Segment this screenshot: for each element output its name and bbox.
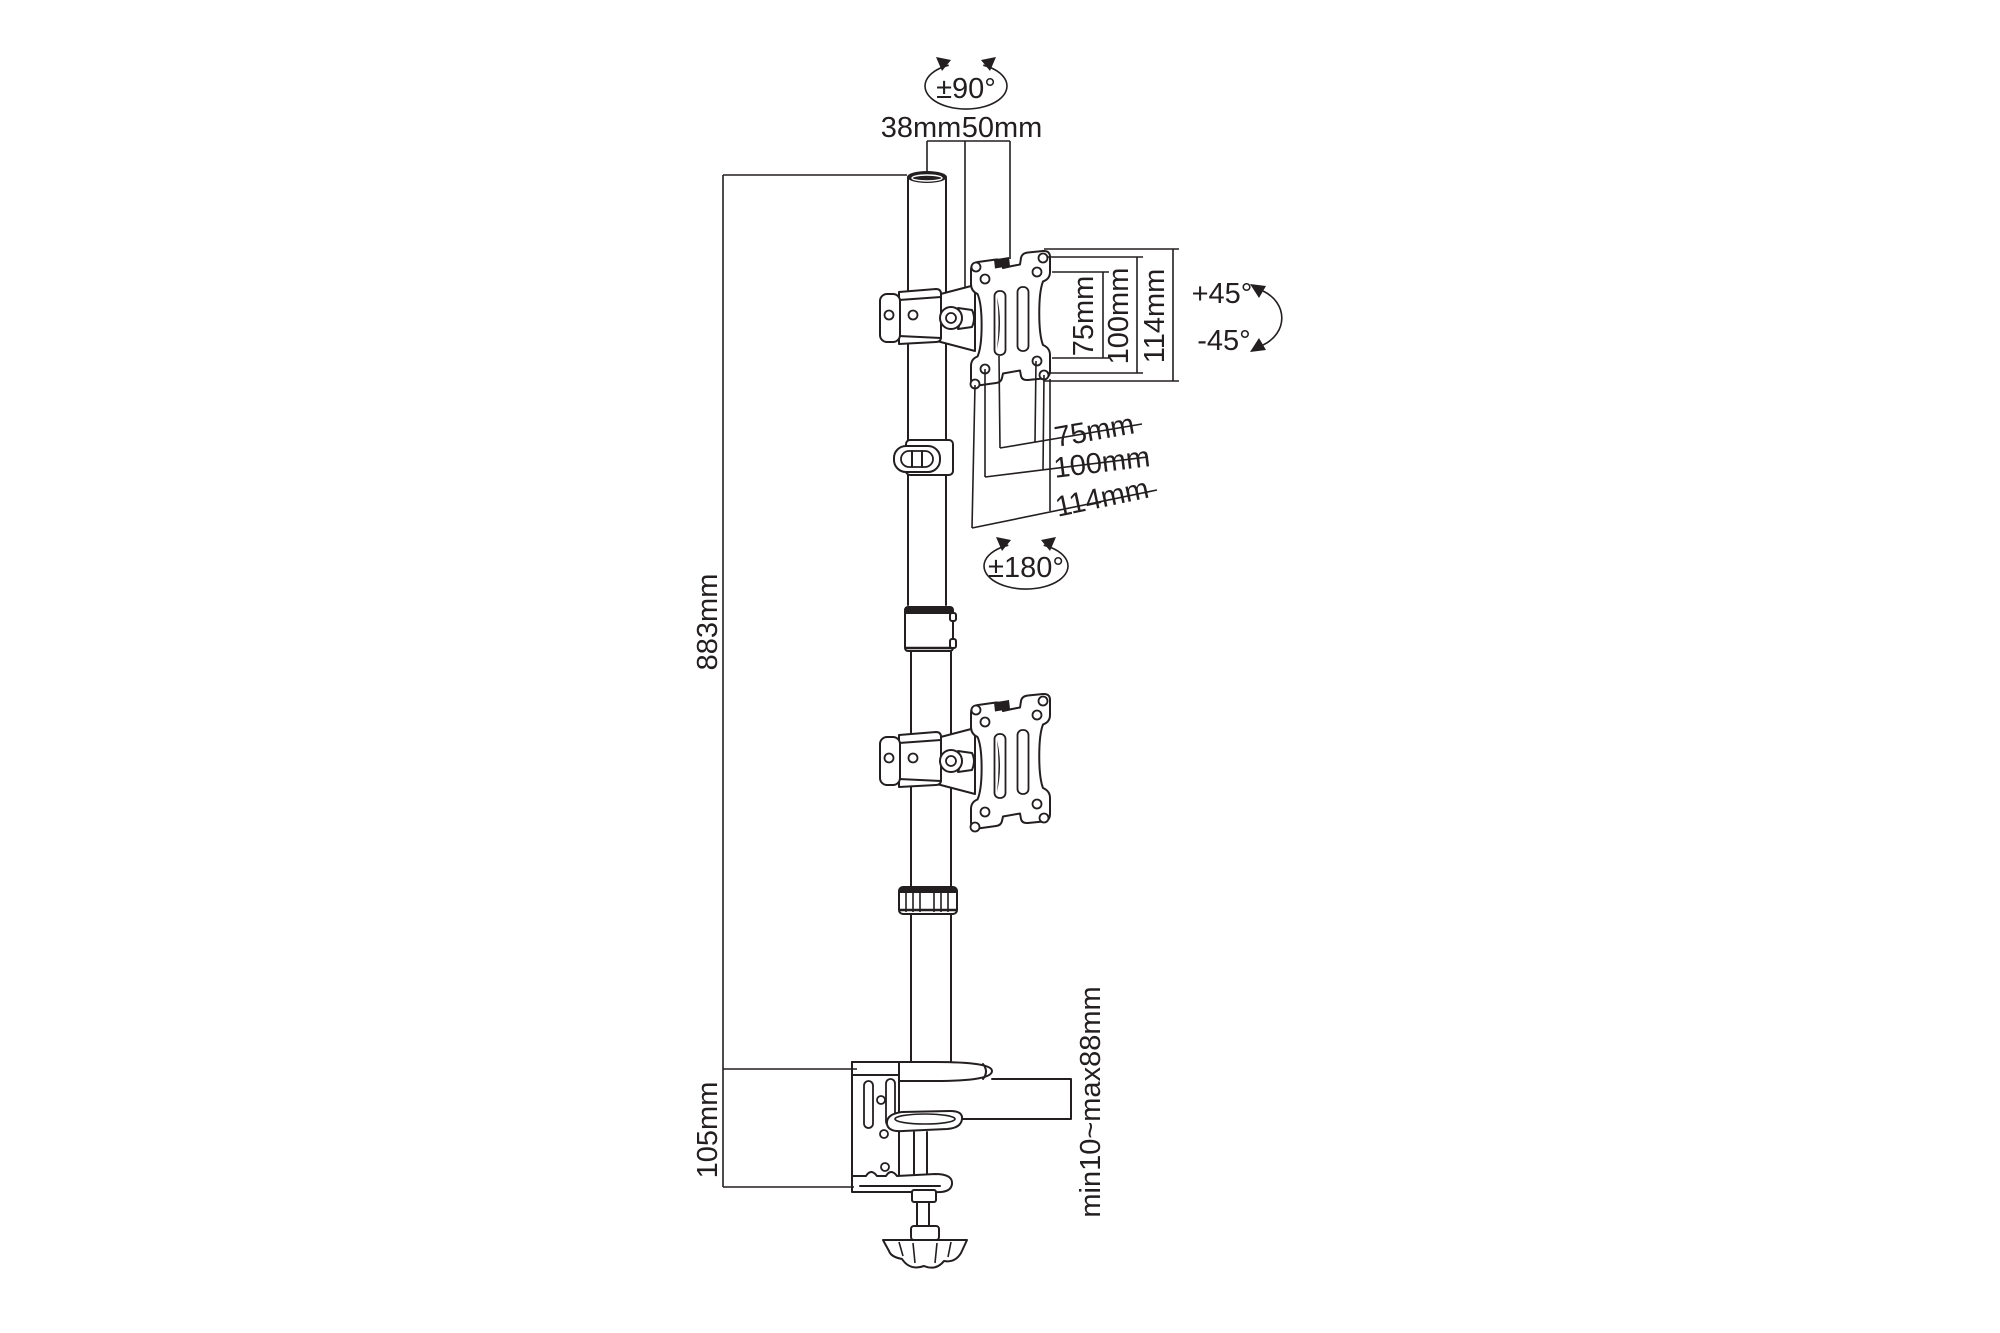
pole-junction-sleeve	[905, 607, 956, 651]
dimension-drawing: 38mm 50mm ±90° 75mm 100mm 114mm +45° -45…	[0, 0, 2000, 1333]
desk-clamp	[852, 1062, 1071, 1268]
clamp-pad	[887, 1111, 962, 1131]
rotation-90-label: ±90°	[936, 73, 996, 105]
bracket-height-label: 105mm	[692, 1082, 724, 1179]
tilt-arc	[1250, 284, 1282, 352]
dimension-labels: 38mm 50mm ±90° 75mm 100mm 114mm +45° -45…	[692, 73, 1252, 1218]
drawing-canvas: 38mm 50mm ±90° 75mm 100mm 114mm +45° -45…	[0, 0, 2000, 1333]
dimension-lines	[723, 57, 1282, 1187]
lower-monitor-mount	[880, 694, 1050, 832]
vesa-100-vertical-label: 100mm	[1103, 268, 1135, 365]
vesa-114-vertical-label: 114mm	[1139, 269, 1171, 364]
desk-surface	[962, 1079, 1071, 1119]
clamp-knob	[883, 1226, 967, 1268]
pole-height-label: 883mm	[692, 574, 724, 671]
tilt-up-label: +45°	[1192, 278, 1253, 310]
clamp-screw	[914, 1132, 927, 1174]
tilt-down-label: -45°	[1197, 325, 1251, 357]
locking-ring	[899, 887, 957, 914]
rotation-180-label: ±180°	[988, 552, 1064, 584]
pole-offset-label: 50mm	[962, 112, 1043, 144]
desk-thickness-label: min10~max88mm	[1075, 986, 1107, 1217]
pole-width-label: 38mm	[881, 112, 962, 144]
vesa-75-vertical-label: 75mm	[1068, 276, 1100, 357]
clamp-arm	[852, 1172, 952, 1192]
height-adjustment-collar	[894, 440, 953, 475]
